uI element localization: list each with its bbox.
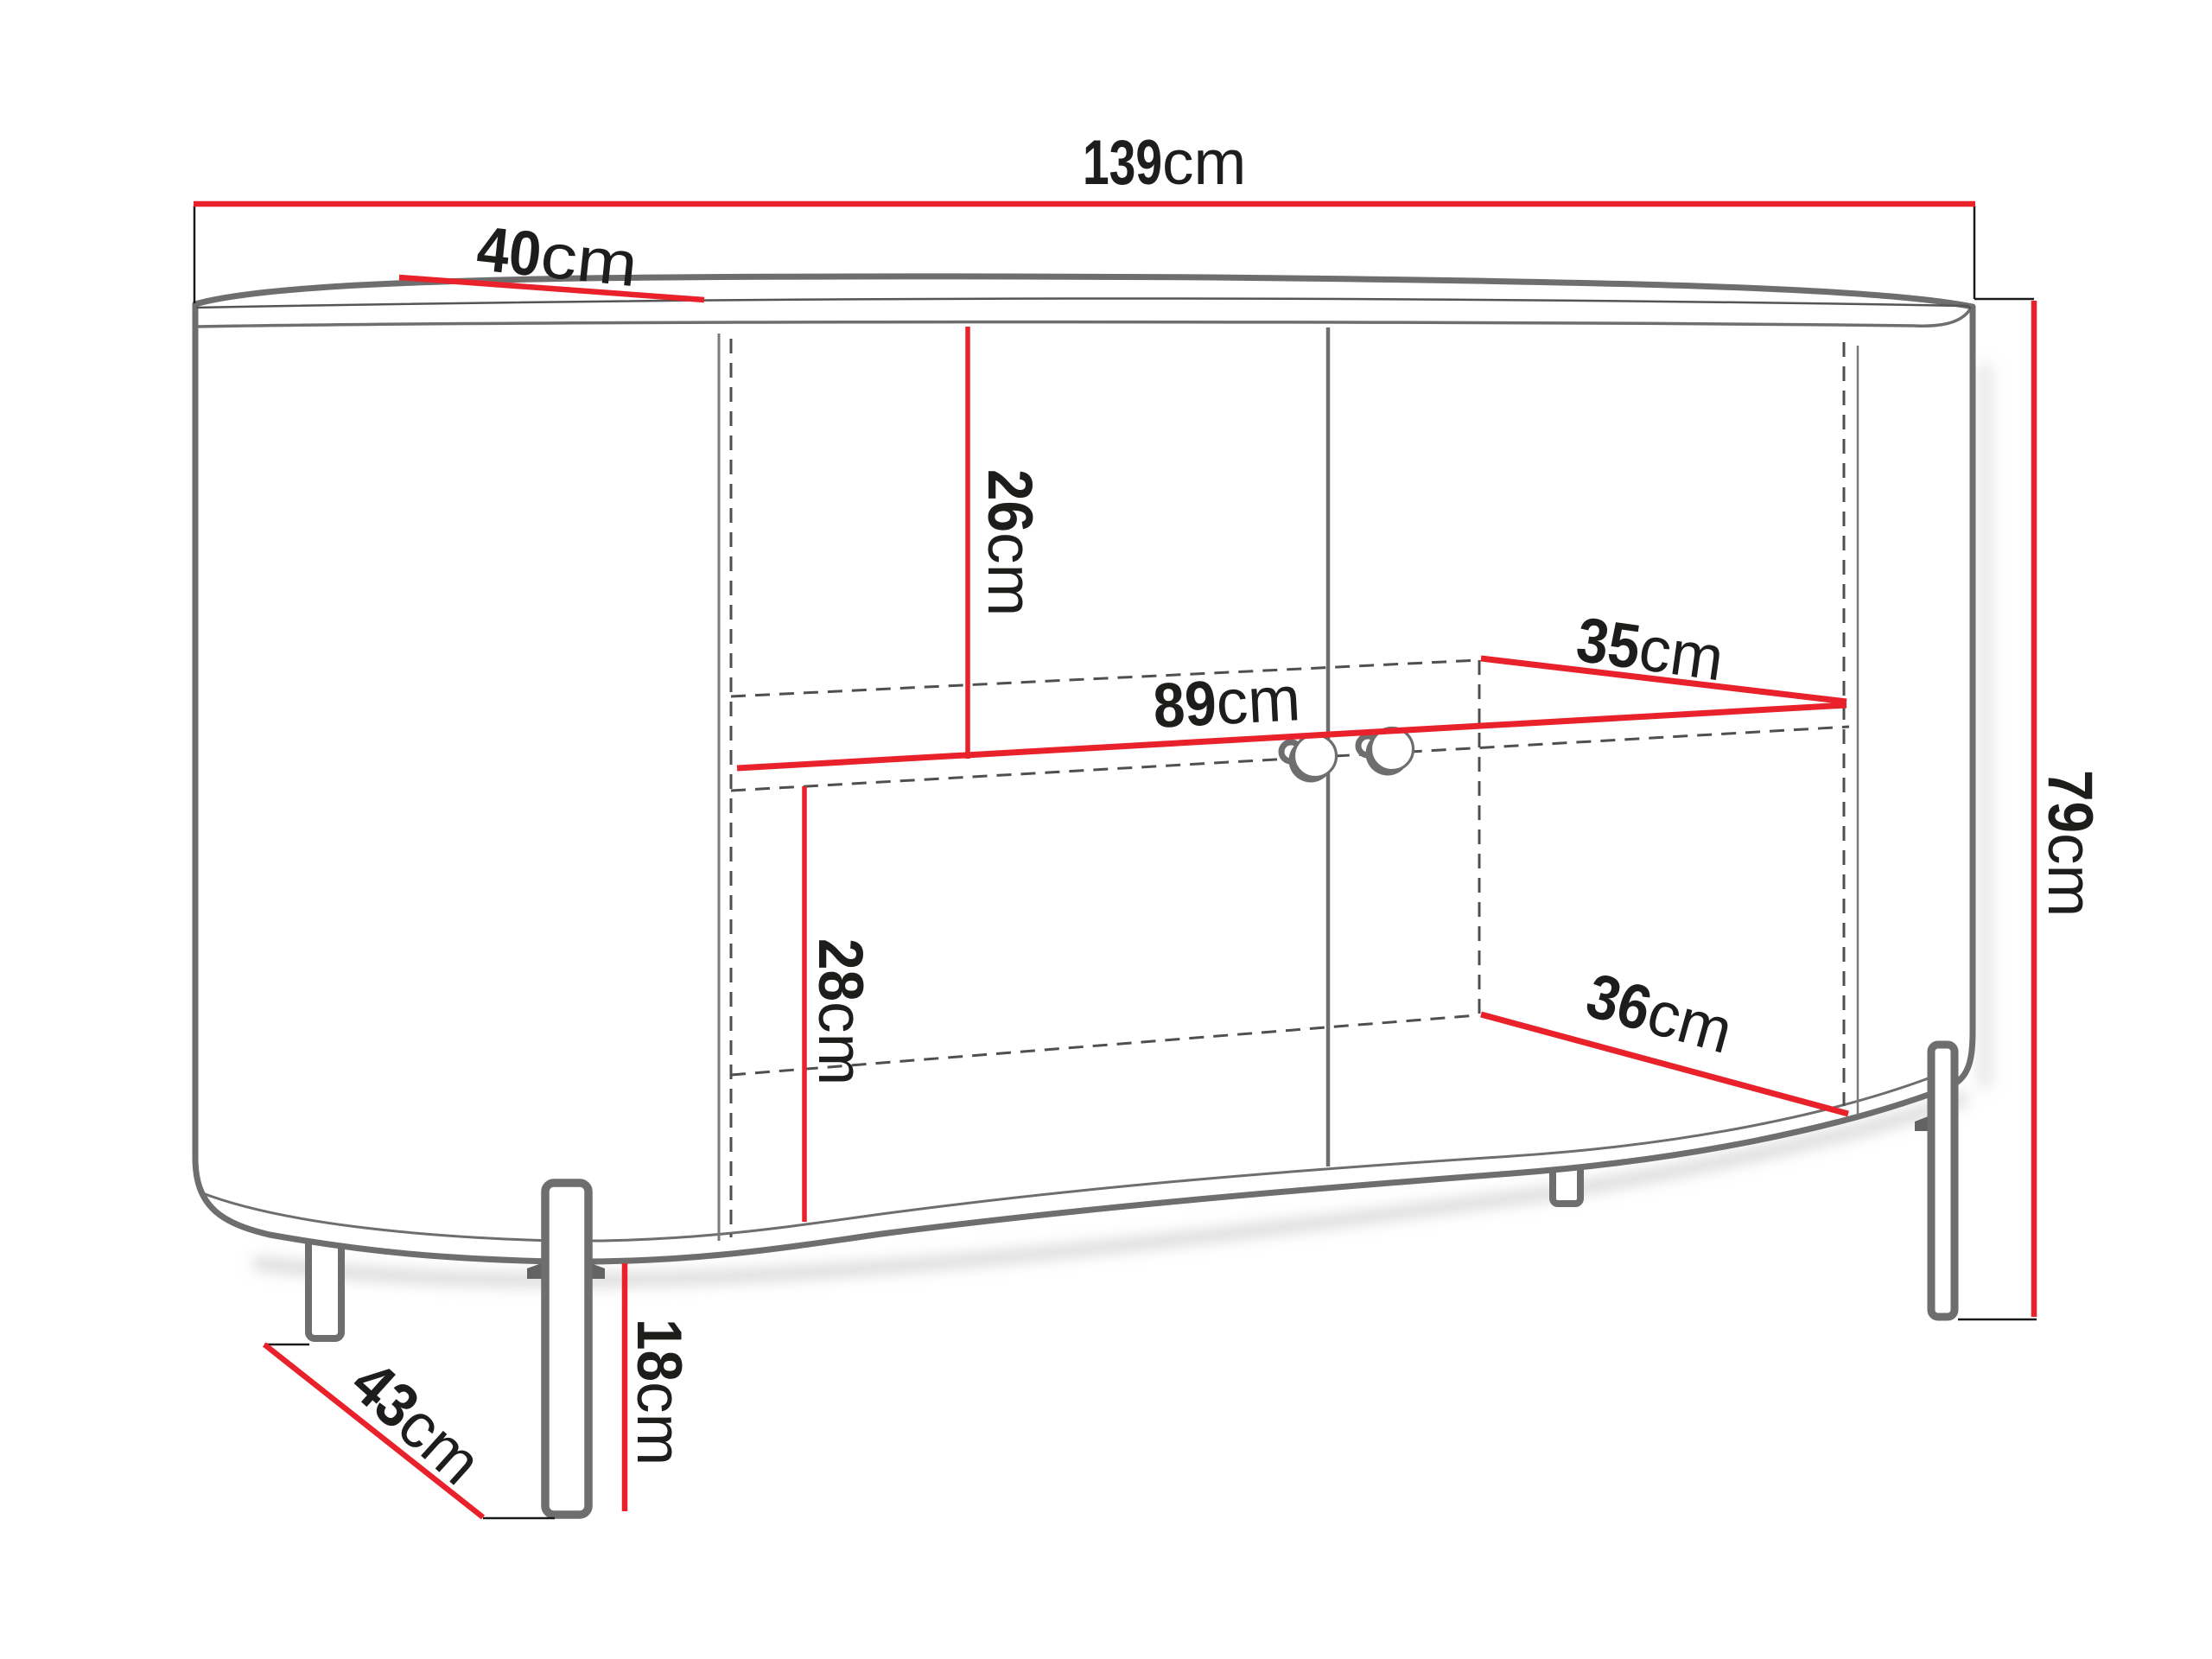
svg-text:18cm: 18cm [624,1319,694,1465]
svg-text:139cm: 139cm [1083,128,1246,198]
svg-text:26cm: 26cm [975,469,1045,616]
svg-text:79cm: 79cm [2035,770,2105,917]
svg-text:89cm: 89cm [1152,664,1302,741]
svg-text:28cm: 28cm [805,938,875,1085]
